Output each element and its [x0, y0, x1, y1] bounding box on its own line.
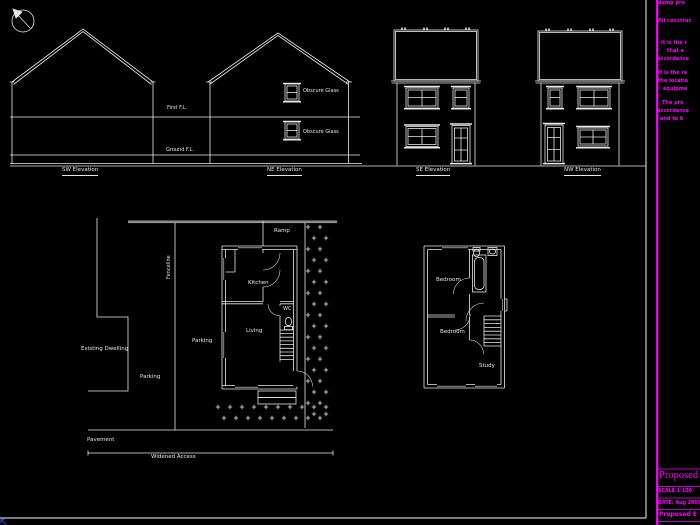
note-line: and to b — [660, 117, 683, 122]
project-title: Proposed — [659, 470, 698, 481]
note-line: It is the r — [661, 41, 687, 46]
cad-drawing-canvas[interactable]: First F.L. Ground F.L. SW Elevation NE E… — [0, 0, 700, 525]
site-plan-drawing — [88, 218, 337, 456]
existing-dwelling-label: Existing Dwelling — [81, 347, 128, 353]
level-lines — [10, 117, 646, 166]
hatch-marks — [216, 405, 328, 420]
obscure-glass-lower-label: Obscure Glass — [303, 130, 339, 135]
note-line: the locatio — [658, 79, 688, 84]
parking-lower-label: Parking — [140, 375, 160, 381]
note-line: accordance — [657, 109, 689, 114]
note-line: equipme — [663, 87, 687, 92]
living-label: Living — [246, 329, 262, 335]
note-line: that a — [667, 49, 684, 54]
ramp-label: Ramp — [274, 229, 290, 235]
drawing-title: Proposed E — [659, 511, 697, 518]
note-line: All construc — [658, 19, 691, 24]
first-floor-level-label: First F.L. — [167, 106, 187, 111]
hatch-marks — [306, 225, 328, 416]
fenceline-label: Fenceline — [167, 255, 172, 279]
ground-floor-plan-drawing — [222, 246, 313, 404]
ne-elevation-label: NE Elevation — [267, 168, 302, 176]
sw-elevation-drawing — [10, 29, 156, 164]
ne-elevation-drawing — [206, 33, 352, 164]
bedroom-back-label: Bedroom — [440, 330, 465, 336]
ground-floor-level-label: Ground F.L. — [166, 148, 194, 153]
note-line: The pro — [662, 101, 684, 106]
kitchen-label: Kitchen — [248, 281, 269, 287]
pavement-label: Pavement — [87, 438, 114, 444]
parking-upper-label: Parking — [192, 339, 212, 345]
scale-field: SCALE 1:100 — [658, 489, 692, 494]
sw-elevation-label: SW Elevation — [62, 168, 98, 176]
nw-elevation-drawing — [535, 29, 625, 166]
note-line: accordance — [657, 57, 689, 62]
note-line: damp pro — [658, 1, 685, 6]
north-arrow-icon — [12, 9, 34, 32]
nw-elevation-label: NW Elevation — [564, 168, 601, 176]
date-field: DATE: Aug 2009 — [658, 501, 700, 506]
study-label: Study — [479, 364, 495, 370]
cad-linework — [0, 0, 700, 525]
note-line: It is the re — [658, 71, 687, 76]
bedroom-front-label: Bedroom — [436, 278, 461, 284]
se-elevation-label: SE Elevation — [416, 168, 450, 176]
obscure-glass-upper-label: Obscure Glass — [303, 89, 339, 94]
widened-access-label: Widened Access — [151, 455, 196, 461]
se-elevation-drawing — [391, 28, 481, 166]
wc-label: WC — [283, 307, 291, 312]
